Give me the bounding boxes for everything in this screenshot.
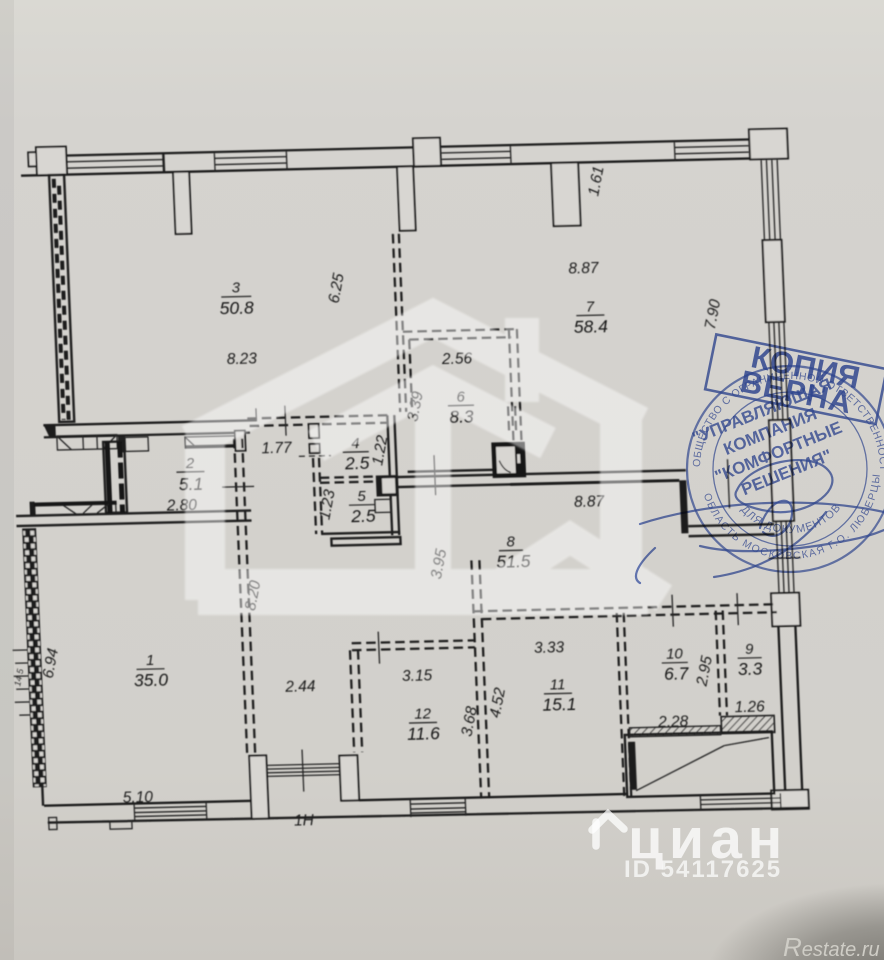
svg-text:12: 12 (414, 705, 432, 722)
svg-text:5.10: 5.10 (122, 789, 153, 807)
svg-text:8.23: 8.23 (226, 350, 257, 368)
svg-text:1.77: 1.77 (261, 439, 293, 457)
svg-text:50.8: 50.8 (219, 297, 254, 318)
svg-text:35.0: 35.0 (134, 670, 169, 691)
svg-text:9: 9 (745, 641, 755, 658)
svg-text:1H: 1H (294, 812, 315, 829)
svg-text:2.44: 2.44 (284, 678, 316, 696)
svg-text:8: 8 (506, 533, 516, 550)
svg-text:1: 1 (146, 652, 155, 669)
svg-text:58.4: 58.4 (573, 316, 608, 337)
svg-text:5: 5 (357, 488, 367, 505)
svg-text:2.5: 2.5 (344, 453, 370, 474)
svg-text:2.5: 2.5 (350, 506, 376, 527)
svg-text:1.26: 1.26 (734, 699, 765, 717)
svg-text:15.1: 15.1 (542, 694, 577, 715)
svg-text:3: 3 (231, 280, 241, 297)
svg-text:11.6: 11.6 (407, 723, 441, 744)
svg-text:3.33: 3.33 (534, 639, 565, 657)
svg-text:3.15: 3.15 (402, 667, 433, 685)
svg-text:ID 54117625: ID 54117625 (624, 856, 782, 883)
svg-text:2.28: 2.28 (657, 713, 689, 731)
svg-text:6.7: 6.7 (664, 663, 690, 684)
svg-text:11: 11 (549, 676, 565, 693)
svg-text:7: 7 (586, 298, 596, 315)
svg-text:3.3: 3.3 (738, 659, 763, 680)
svg-text:8.87: 8.87 (568, 260, 600, 278)
svg-text:10: 10 (666, 645, 684, 662)
